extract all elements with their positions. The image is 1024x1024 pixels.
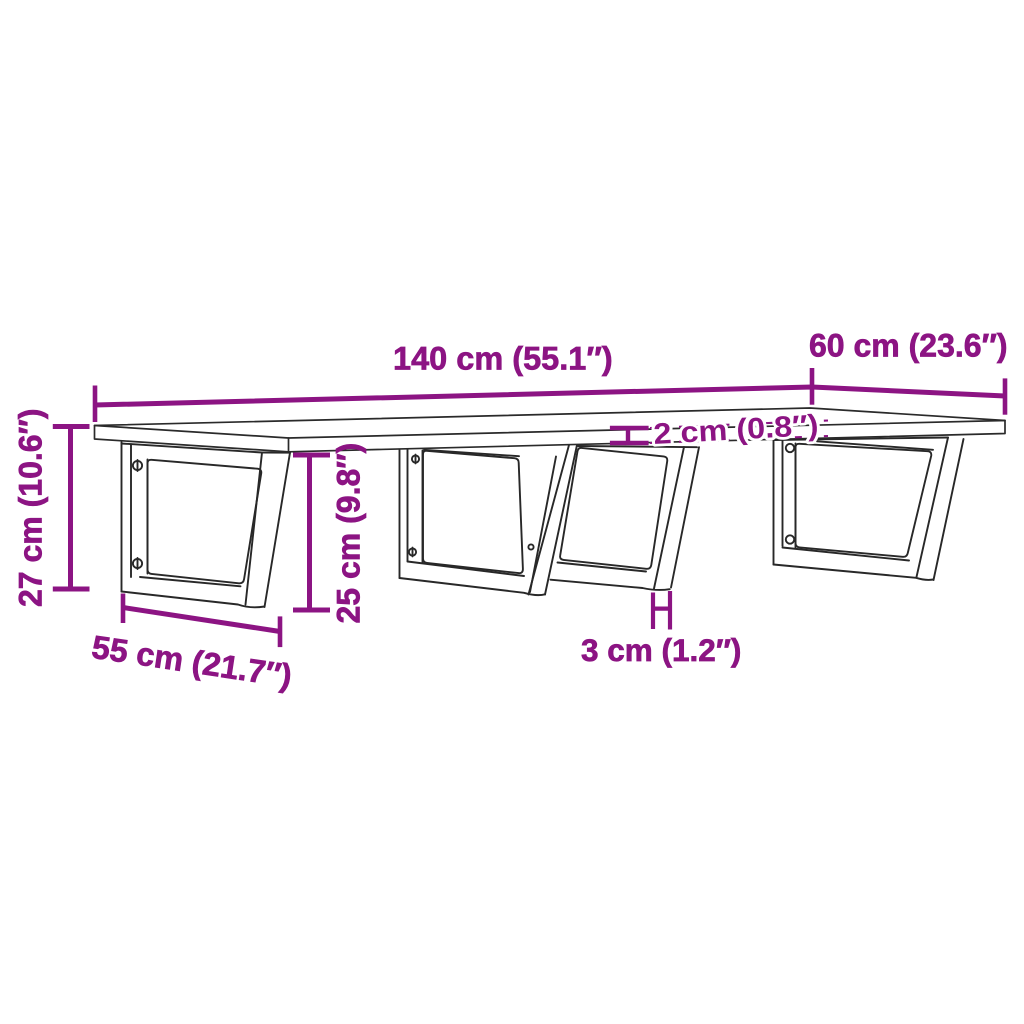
svg-text:3 cm (1.2″): 3 cm (1.2″) [581, 632, 741, 668]
svg-text:140 cm (55.1″): 140 cm (55.1″) [393, 341, 613, 377]
svg-text:25 cm (9.8″): 25 cm (9.8″) [331, 443, 367, 624]
svg-text:60 cm (23.6″): 60 cm (23.6″) [809, 328, 1008, 364]
svg-text:27 cm (10.6″): 27 cm (10.6″) [13, 408, 49, 607]
